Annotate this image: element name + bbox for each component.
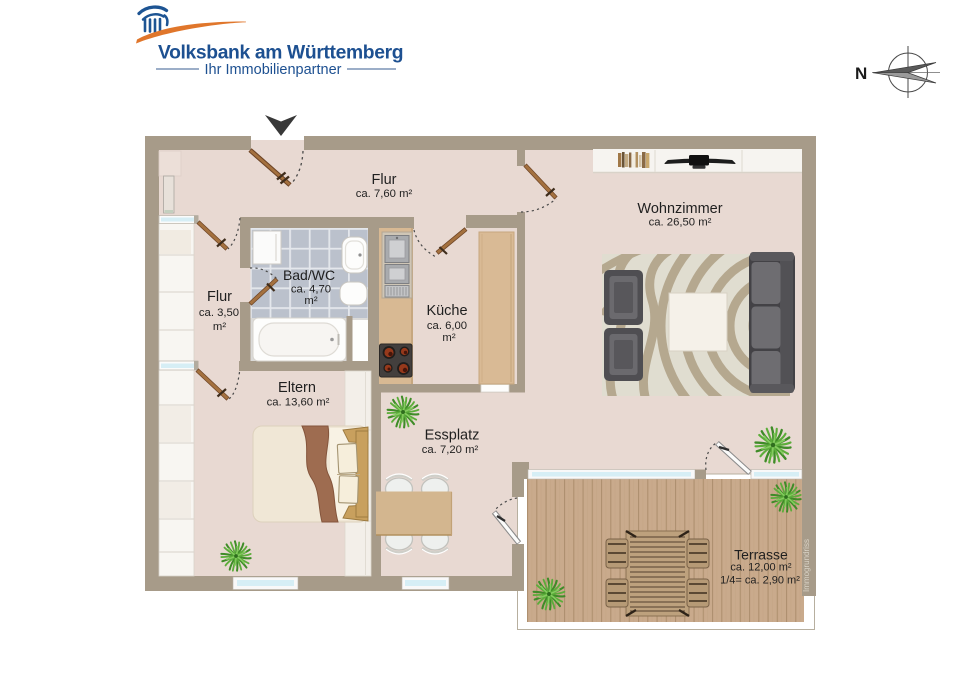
svg-text:Flur: Flur bbox=[207, 289, 232, 305]
svg-text:m²: m² bbox=[304, 295, 317, 307]
svg-text:Essplatz: Essplatz bbox=[425, 428, 480, 444]
svg-text:Ihr Immobilienpartner: Ihr Immobilienpartner bbox=[205, 62, 342, 78]
svg-text:N: N bbox=[855, 64, 867, 83]
svg-text:Flur: Flur bbox=[372, 172, 397, 188]
svg-text:Immogrundriss: Immogrundriss bbox=[802, 539, 811, 592]
svg-text:Bad/WC: Bad/WC bbox=[283, 267, 335, 283]
svg-text:m²: m² bbox=[213, 321, 226, 333]
svg-text:ca. 3,50: ca. 3,50 bbox=[199, 307, 239, 319]
svg-text:ca. 13,60 m²: ca. 13,60 m² bbox=[267, 397, 330, 409]
svg-text:m²: m² bbox=[442, 332, 455, 344]
svg-text:ca. 26,50 m²: ca. 26,50 m² bbox=[649, 217, 712, 229]
svg-text:ca. 6,00: ca. 6,00 bbox=[427, 320, 467, 332]
svg-text:Küche: Küche bbox=[426, 303, 467, 319]
svg-text:ca. 7,60 m²: ca. 7,60 m² bbox=[356, 188, 413, 200]
svg-text:ca. 4,70: ca. 4,70 bbox=[291, 284, 331, 296]
svg-text:Volksbank am Württemberg: Volksbank am Württemberg bbox=[158, 43, 403, 64]
svg-text:ca. 7,20 m²: ca. 7,20 m² bbox=[422, 444, 479, 456]
svg-text:1/4= ca. 2,90 m²: 1/4= ca. 2,90 m² bbox=[720, 575, 800, 587]
svg-text:ca. 12,00 m²: ca. 12,00 m² bbox=[730, 562, 791, 574]
svg-text:Terrasse: Terrasse bbox=[734, 547, 788, 563]
svg-text:Eltern: Eltern bbox=[278, 380, 316, 396]
svg-text:Wohnzimmer: Wohnzimmer bbox=[637, 201, 722, 217]
